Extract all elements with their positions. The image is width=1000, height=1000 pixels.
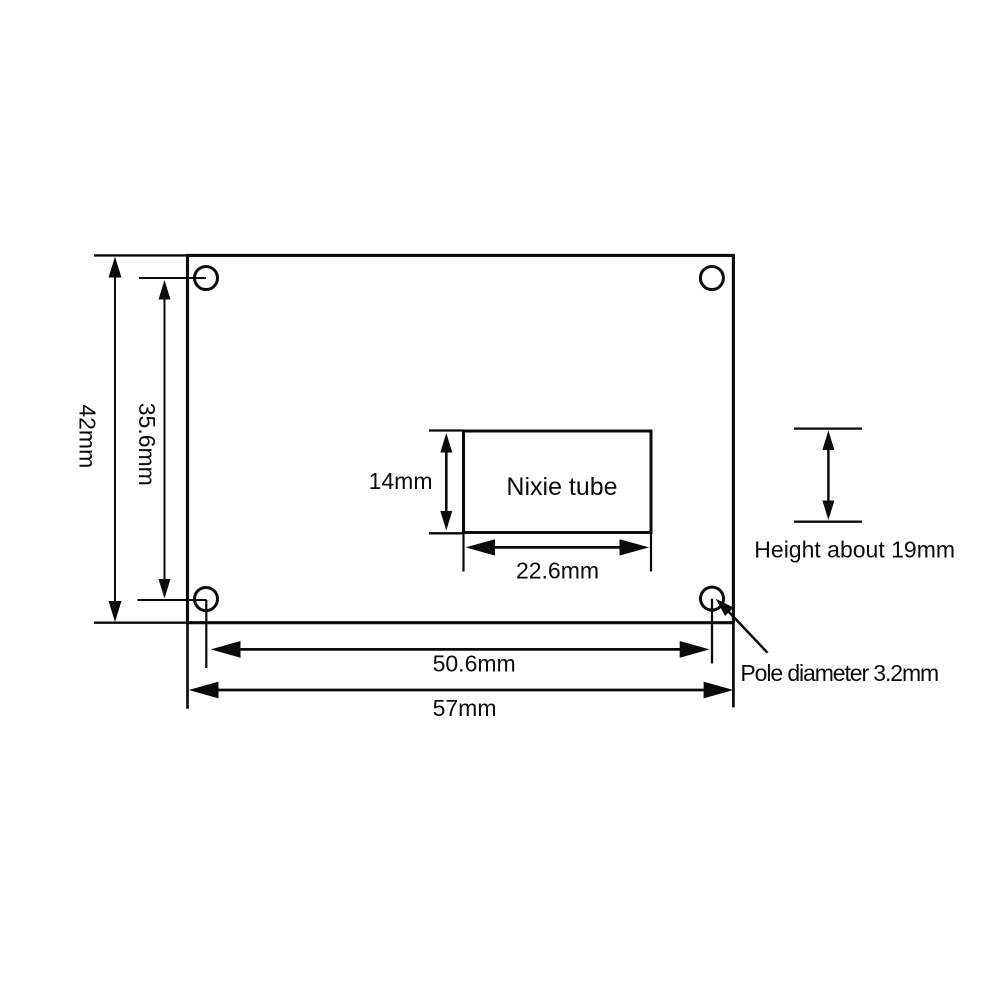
svg-text:50.6mm: 50.6mm xyxy=(433,650,516,676)
svg-text:14mm: 14mm xyxy=(369,468,433,494)
svg-text:Height about 19mm: Height about 19mm xyxy=(754,537,955,563)
svg-text:57mm: 57mm xyxy=(433,695,497,721)
svg-text:35.6mm: 35.6mm xyxy=(134,403,160,486)
svg-text:22.6mm: 22.6mm xyxy=(516,558,599,584)
svg-text:Nixie tube: Nixie tube xyxy=(506,473,617,501)
svg-text:Pole diameter 3.2mm: Pole diameter 3.2mm xyxy=(740,660,938,686)
svg-text:42mm: 42mm xyxy=(75,404,101,468)
